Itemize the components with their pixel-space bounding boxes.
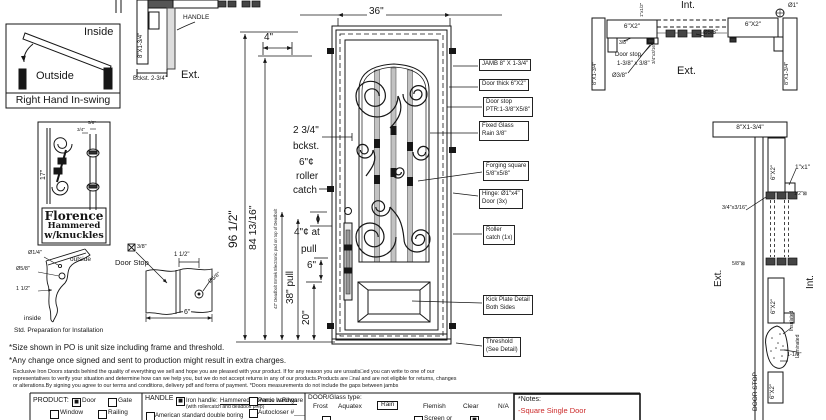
callout-kick-line2: Both Sides (486, 305, 530, 313)
product-option-gate[interactable]: Gate (118, 398, 132, 405)
checkbox-screen-or[interactable] (414, 416, 423, 420)
plan-right-head-left: 6"X2" (607, 24, 657, 31)
handle-label: HANDLE (145, 395, 173, 402)
florence-58-dim: 5/8" (88, 121, 96, 126)
florence-34-dim: 3/4" (77, 128, 85, 133)
florence-17-dim: 17" (40, 170, 47, 180)
callout-roller: Rollercatch (1x) (483, 225, 515, 245)
checkbox-autocloser[interactable] (249, 409, 258, 418)
section-dim-1half: 1-1/2" (787, 353, 802, 359)
glass-option-flemish[interactable]: Flemish (423, 404, 446, 411)
plan-right-int-label: Int. (681, 1, 695, 12)
plan-right-dim-edge: 3/4"x3/16" (652, 44, 657, 64)
callout-threshold-line2: (See Detail) (486, 347, 518, 355)
plan-left-ext-label: Ext. (181, 70, 200, 82)
section-int-label: Int. (806, 275, 817, 289)
roller-line1: 6"¢ (299, 158, 314, 169)
callout-forging-line2: 5/8"x5/8" (486, 171, 526, 179)
note-unit-size: *Size shown in PO is unit size including… (9, 344, 224, 352)
callout-hinge-line2: Door (3x) (482, 199, 520, 207)
corner-caption: Std. Preparation for Installation (14, 328, 103, 335)
plan-right-dim-top: 1"x1/2" (640, 3, 645, 17)
callout-roller-line2: catch (1x) (486, 235, 512, 243)
swing-title: Right Hand In-swing (6, 95, 120, 106)
corner-outside-label: outside (70, 257, 91, 264)
roller-line2: roller (296, 172, 318, 183)
callout-door-stop-line1: Door stop (486, 99, 530, 107)
door-stop-detail-drawing (128, 244, 212, 322)
checkbox-railing[interactable] (98, 410, 107, 419)
glass-option-frost[interactable]: Frost (313, 404, 328, 411)
section-box3-label: 6"X2" (770, 384, 776, 399)
callout-jamb-text: JAMB 8" X 1-3/4" (482, 61, 528, 69)
section-door-stop-label: DOOR STOP (753, 372, 760, 411)
plan-left-jamb-label: 8"X1-3/4" (138, 33, 144, 58)
corner-inside-label: inside (24, 316, 41, 323)
plan-right-dia-58: Ø5/8" (703, 30, 718, 36)
pull-38-dim: 38" pull (286, 271, 297, 304)
plan-right-jamb-right: 8"X1-3/4" (785, 62, 791, 85)
form-notes-label: *Notes: (518, 396, 541, 403)
checkbox-iron-handle[interactable]: ■ (176, 397, 185, 406)
glass-type-label: DOOR/Glass type: (308, 395, 362, 402)
plan-right-dia-38: Ø3/8" (612, 73, 627, 79)
checkbox-glass-extra1[interactable] (322, 416, 331, 420)
deadbolt-note: 42" Deadbolt Emtek Electronic pad on top… (274, 209, 278, 309)
note-extra-charges: *Any change once signed and sent to prod… (9, 357, 286, 365)
callout-door-stop: Door stopPTR:1-3/8"X5/8" (483, 97, 533, 117)
form-notes-value: -Square Single Door (518, 407, 586, 415)
screen-or-label[interactable]: Screen or (424, 416, 452, 420)
plan-right-head-right: 6"X2" (728, 22, 778, 29)
stop-title: Door Stop (115, 259, 149, 267)
callout-door-thick-text: Door thick 6"X2" (482, 81, 526, 89)
door-20-dim: 20" (302, 310, 313, 325)
section-header-label: 8"X1-3/4" (713, 125, 787, 132)
checkbox-door[interactable]: ■ (72, 398, 81, 407)
florence-detail: w/knuckles (43, 231, 105, 241)
plan-right-dim-38: 3/8" (619, 41, 628, 46)
plan-left-backset-dim: Bckst. 2-3/4" (133, 76, 167, 82)
swing-outside-label: Outside (36, 71, 74, 83)
door-height-dim: 96 1/2" (227, 210, 240, 248)
checkbox-gate[interactable] (108, 398, 117, 407)
door-width-dim: 36" (367, 7, 386, 18)
corner-dim-1half: 1 1/2" (16, 287, 30, 293)
section-dim-58: 5/8"⊠ (732, 262, 745, 267)
plan-left-handle-label: HANDLE (183, 15, 209, 22)
plan-right-door-stop: Door stop (615, 52, 641, 58)
callout-fixed-glass: Fixed GlassRain 3/8" (479, 121, 529, 141)
product-option-door[interactable]: Door (82, 398, 96, 405)
callout-door-thick: Door thick 6"X2" (479, 79, 529, 91)
plan-right-jamb-left: 8"X1-3/4" (593, 62, 599, 85)
callout-threshold-line1: Threshold (486, 339, 518, 347)
product-option-window[interactable]: Window (60, 410, 83, 417)
roller-line3: catch (293, 186, 317, 197)
checkbox-american-standard[interactable] (146, 412, 155, 420)
callout-threshold: Threshold(See Detail) (483, 337, 521, 357)
handle-option-autocloser[interactable]: Autocloser #___ (258, 410, 305, 417)
section-dim-edge: 3/4"x3/16" (722, 206, 747, 212)
callout-hinge-line1: Hinge: Ø1"x4" (482, 191, 520, 199)
plan-right-ext-label: Ext. (677, 66, 696, 78)
checkbox-panic[interactable] (249, 397, 258, 406)
callout-forging: Forging square5/8"x5/8" (483, 161, 529, 181)
fine-print-line1: Exclusive Iron Doors stands behind the q… (13, 370, 435, 376)
product-label: PRODUCT: (33, 397, 69, 404)
callout-kick-plate: Kick Plate DetailBoth Sides (483, 295, 533, 315)
section-insulated-label: Insulated (790, 311, 795, 331)
door-6in-dim: 6" (307, 261, 316, 272)
door-elevation-drawing (327, 26, 456, 344)
callout-glass-line2: Rain 3/8" (482, 131, 526, 139)
checkbox-glass-extra2[interactable]: ■ (470, 416, 479, 420)
door-84-dim: 84 13/16" (248, 205, 259, 250)
glass-option-rain-selected[interactable]: Rain (377, 401, 398, 410)
section-box1-label: 6"X2" (771, 165, 777, 180)
glass-option-aquatex[interactable]: Aquatex (338, 404, 362, 411)
pull-line2: pull (301, 245, 317, 256)
fine-print-line3: or alterations.By signing you agree to o… (13, 384, 398, 390)
corner-dia-58: Ø5/8" (16, 267, 30, 273)
callout-kick-line1: Kick Plate Detail (486, 297, 530, 305)
callout-glass-line1: Fixed Glass (482, 123, 526, 131)
callout-forging-line1: Forging square (486, 163, 526, 171)
glass-option-na[interactable]: N/A (498, 404, 509, 411)
stop-dim-6: 6" (183, 309, 191, 316)
section-dim-1x1: 1"x1" (795, 165, 810, 172)
fine-print-line2: representatives to verify your situation… (13, 377, 456, 383)
backset-word: bckst. (293, 142, 319, 153)
door-shop-drawing: Inside Outside Right Hand In-swing 8"X1-… (0, 0, 826, 420)
handle-option-american[interactable]: American standard double boring (155, 413, 243, 419)
stop-dim-1half: 1 1/2" (174, 252, 189, 258)
product-option-railing[interactable]: Railing (108, 410, 128, 417)
corner-dia-quarter: Ø1/4" (28, 251, 42, 257)
section-dim-half: 1/2"⊠ (794, 192, 807, 197)
callout-jamb: JAMB 8" X 1-3/4" (479, 59, 531, 71)
plan-right-dia-1: Ø1" (788, 3, 798, 9)
pull-line1: 4"¢ at (294, 228, 320, 239)
callout-door-stop-line2: PTR:1-3/8"X5/8" (486, 107, 530, 115)
swing-inside-label: Inside (84, 27, 113, 39)
backset-value: 2 3/4" (293, 126, 319, 137)
stop-dim-38: 3/8" (137, 245, 147, 251)
section-box2-label: 6"X2" (771, 299, 777, 314)
plan-right-door-stop-size: 1-3/8" x 3/8" (617, 61, 650, 67)
callout-roller-line1: Roller (486, 227, 512, 235)
section-ext-label: Ext. (714, 270, 725, 287)
callout-hinge: Hinge: Ø1"x4"Door (3x) (479, 189, 523, 209)
handle-option-panic[interactable]: Panic hardware (258, 398, 303, 405)
checkbox-window[interactable] (50, 410, 59, 419)
door-4in-dim: 4" (264, 33, 273, 44)
glass-option-clear[interactable]: Clear (463, 404, 479, 411)
